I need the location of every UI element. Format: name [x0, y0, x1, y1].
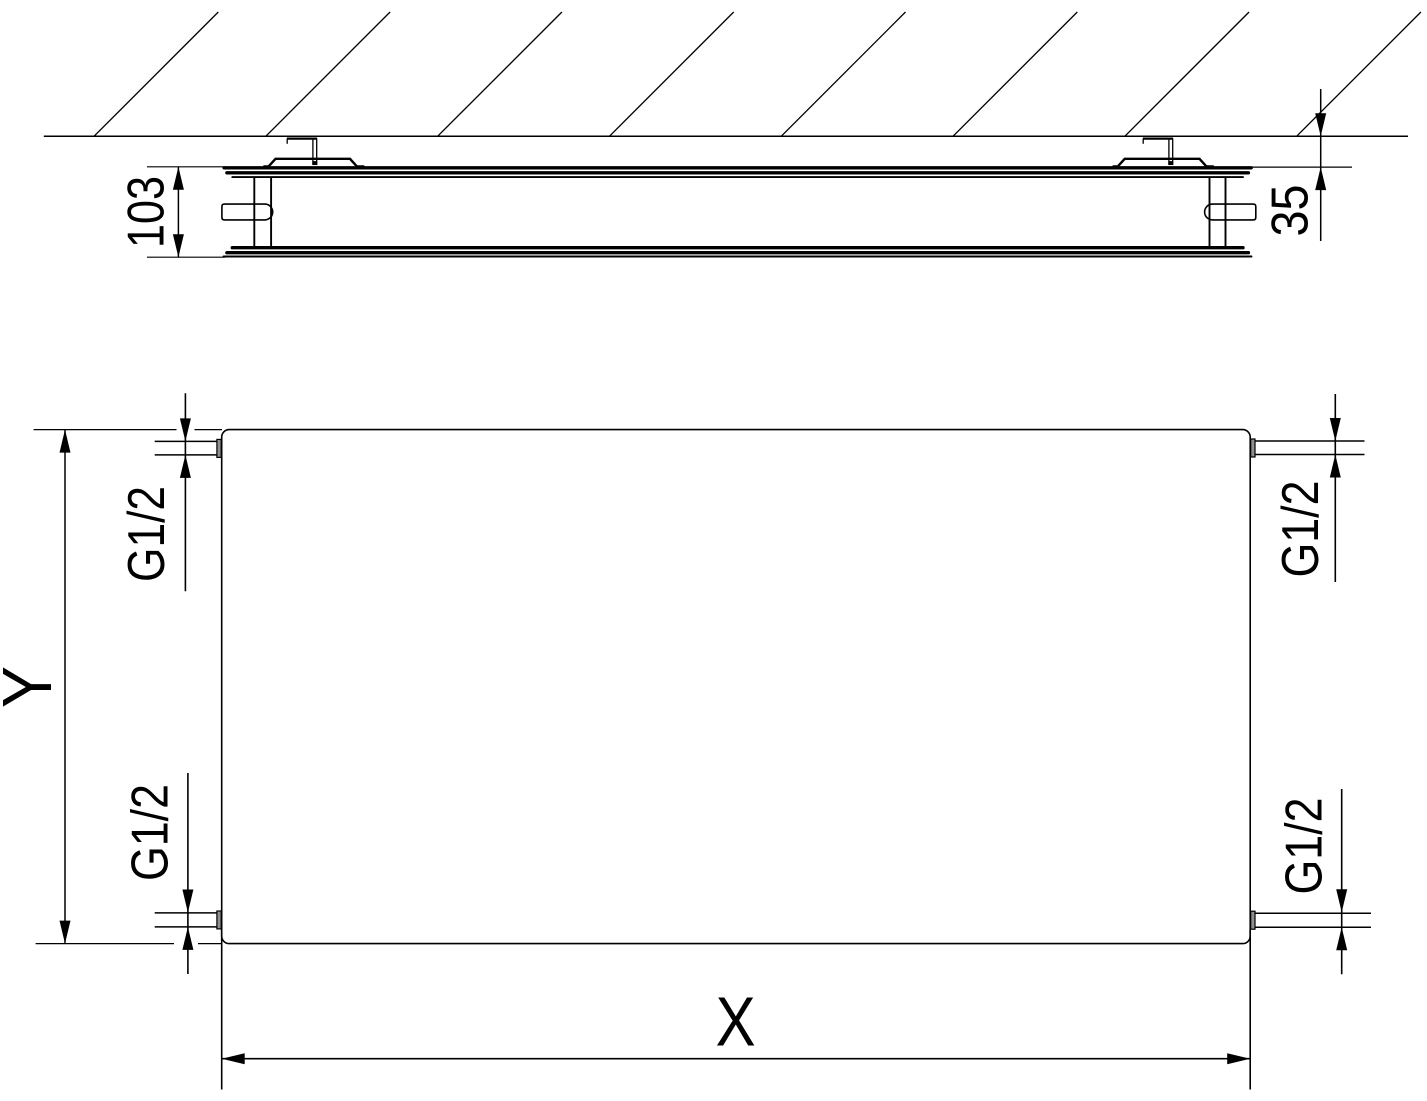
svg-text:35: 35	[1262, 185, 1320, 237]
svg-text:G1/2: G1/2	[1272, 481, 1330, 578]
svg-text:X: X	[716, 983, 756, 1061]
svg-text:G1/2: G1/2	[1276, 798, 1334, 895]
svg-text:G1/2: G1/2	[118, 486, 176, 582]
svg-text:103: 103	[118, 176, 176, 248]
svg-text:G1/2: G1/2	[122, 784, 180, 881]
svg-text:Y: Y	[0, 666, 66, 708]
